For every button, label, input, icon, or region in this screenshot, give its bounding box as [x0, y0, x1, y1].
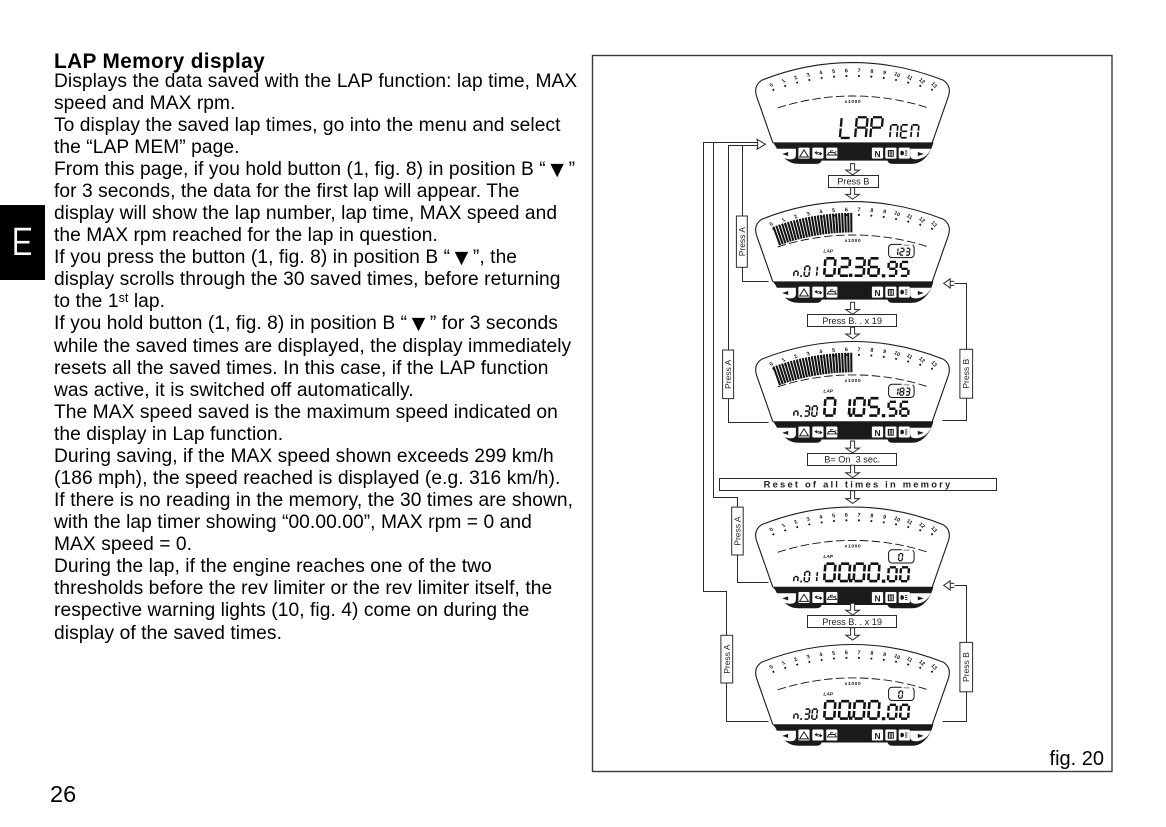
- svg-text:max: max: [904, 383, 910, 387]
- svg-text:Press B: Press B: [961, 359, 971, 389]
- svg-text:Press A: Press A: [732, 516, 742, 546]
- svg-text:Reset of all times in memory: Reset of all times in memory: [764, 479, 953, 490]
- svg-text:LAP: LAP: [823, 389, 833, 395]
- svg-text:LAP: LAP: [823, 249, 833, 255]
- svg-text:Press B: Press B: [837, 177, 869, 187]
- svg-text:Press B. . x 19: Press B. . x 19: [822, 316, 882, 326]
- svg-text:Press A: Press A: [737, 227, 747, 257]
- svg-text:LAP: LAP: [823, 692, 833, 698]
- svg-text:LAP: LAP: [823, 554, 833, 560]
- svg-text:max: max: [904, 243, 910, 247]
- svg-text:max: max: [904, 686, 910, 690]
- svg-text:max: max: [904, 548, 910, 552]
- svg-text:Press B: Press B: [961, 652, 971, 682]
- svg-text:B= On 3 sec.: B= On 3 sec.: [824, 454, 880, 464]
- svg-text:Press B. . x 19: Press B. . x 19: [822, 617, 882, 627]
- svg-text:Press A: Press A: [723, 359, 733, 389]
- svg-text:Press A: Press A: [722, 644, 732, 674]
